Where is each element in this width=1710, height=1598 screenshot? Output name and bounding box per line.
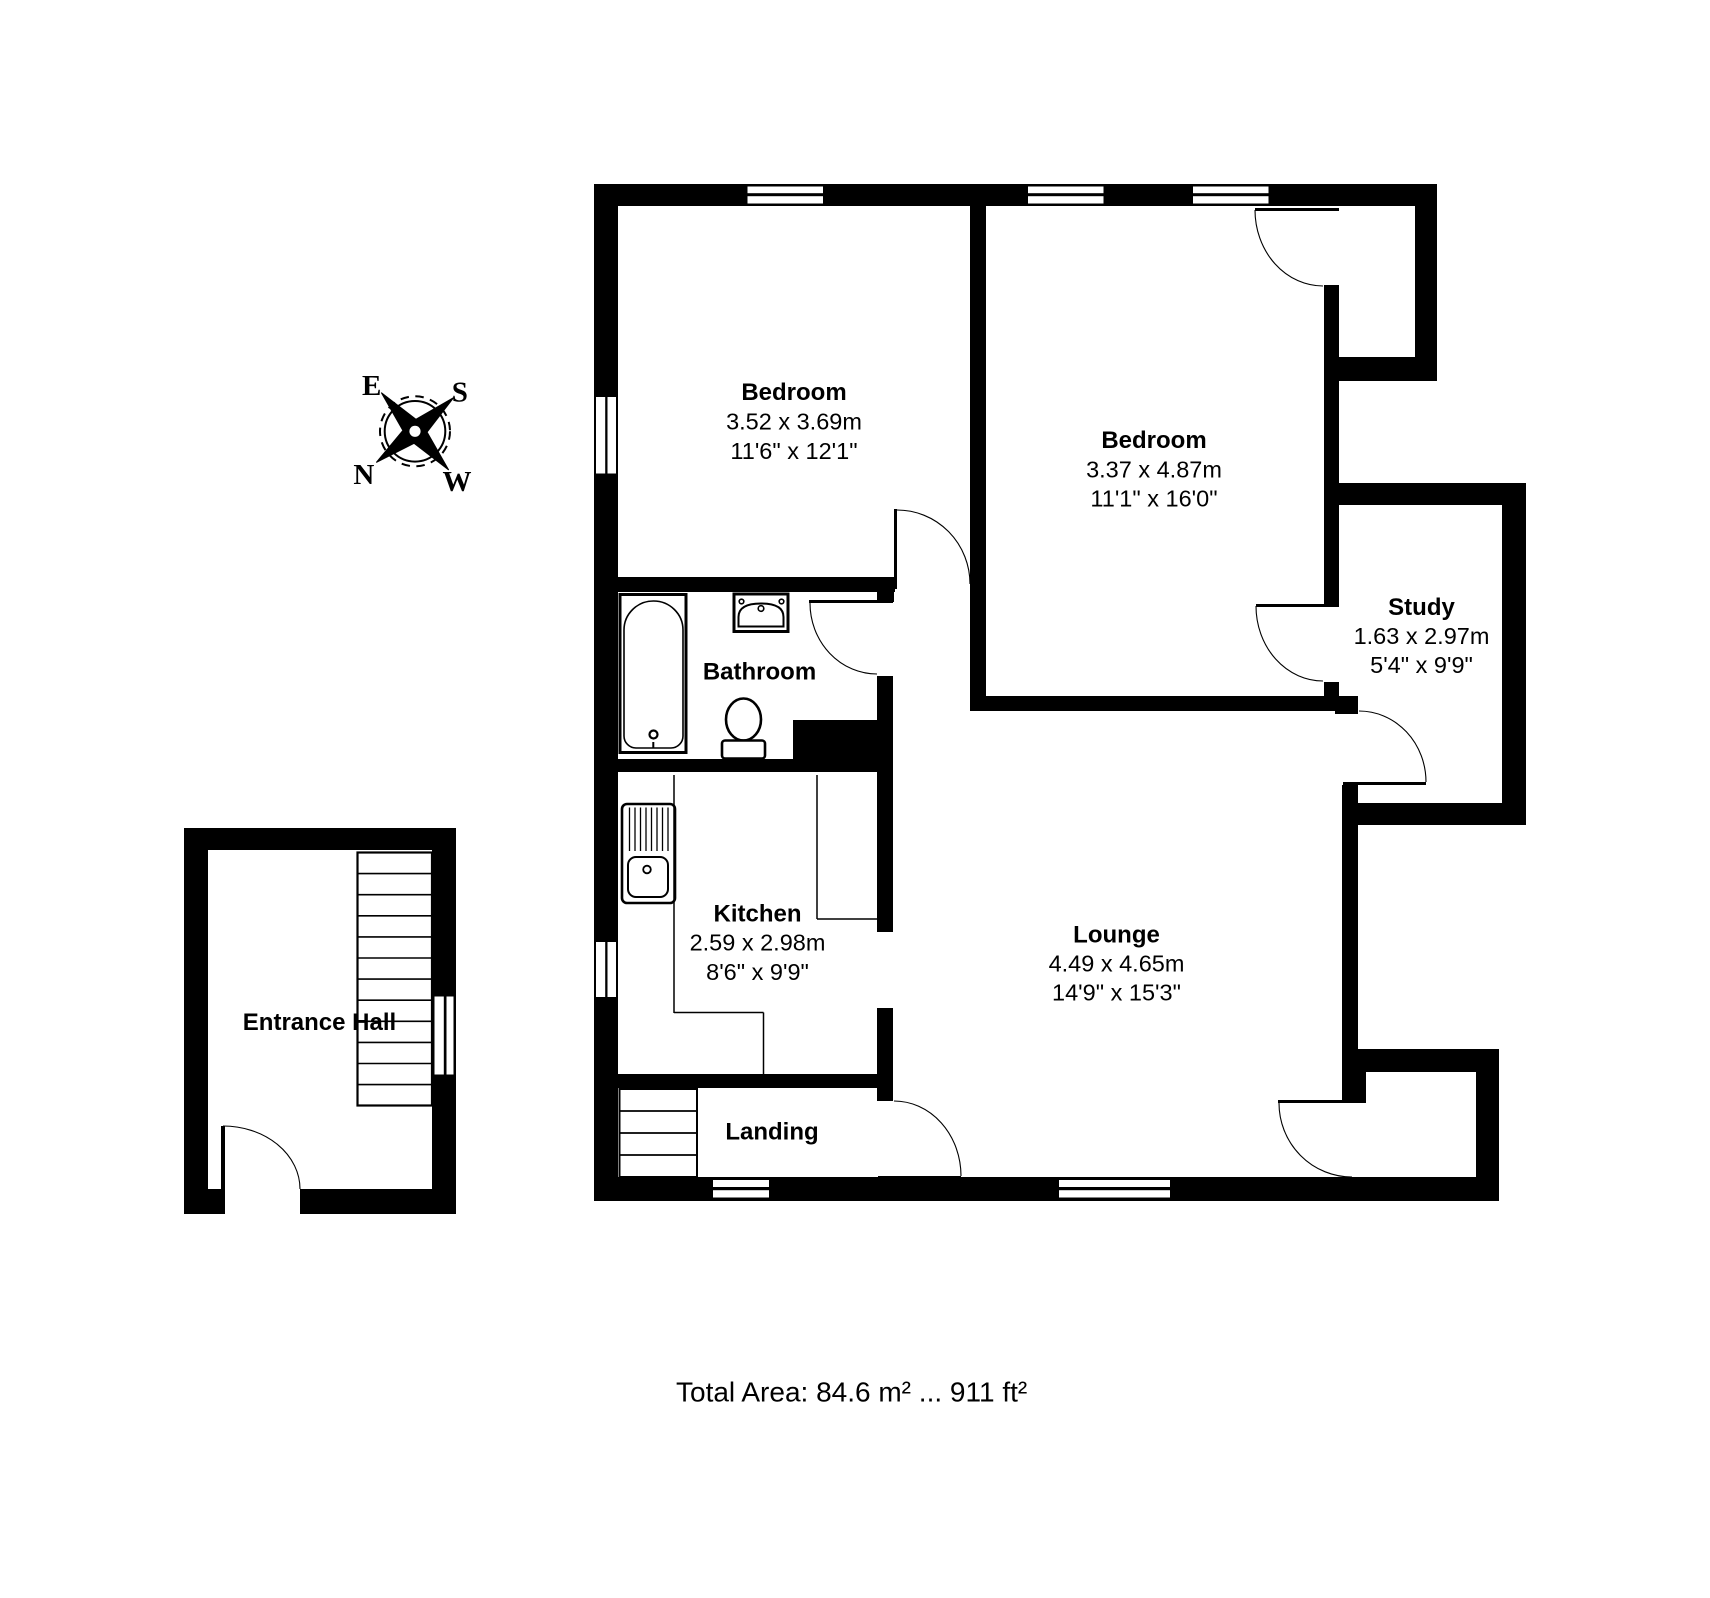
svg-text:S: S <box>452 377 468 409</box>
svg-text:Entrance Hall: Entrance Hall <box>243 1009 396 1036</box>
svg-text:14'9" x 15'3": 14'9" x 15'3" <box>1052 980 1181 1006</box>
svg-text:Total Area: 84.6 m² ... 911 ft: Total Area: 84.6 m² ... 911 ft² <box>676 1377 1027 1408</box>
svg-text:Kitchen: Kitchen <box>713 901 801 928</box>
svg-text:W: W <box>443 466 472 498</box>
svg-text:4.49 x 4.65m: 4.49 x 4.65m <box>1049 951 1185 977</box>
svg-text:11'1" x 16'0": 11'1" x 16'0" <box>1090 486 1217 512</box>
svg-text:5'4" x 9'9": 5'4" x 9'9" <box>1370 652 1473 678</box>
svg-text:Bathroom: Bathroom <box>703 659 816 686</box>
svg-text:N: N <box>353 459 374 491</box>
svg-text:3.52 x 3.69m: 3.52 x 3.69m <box>726 409 862 435</box>
svg-text:Bedroom: Bedroom <box>1101 427 1206 454</box>
svg-text:Landing: Landing <box>725 1119 818 1146</box>
svg-text:Study: Study <box>1388 594 1455 621</box>
svg-text:3.37 x 4.87m: 3.37 x 4.87m <box>1086 457 1222 483</box>
svg-text:Bedroom: Bedroom <box>741 379 846 406</box>
svg-text:Lounge: Lounge <box>1073 922 1160 949</box>
svg-text:8'6" x 9'9": 8'6" x 9'9" <box>706 959 809 985</box>
svg-text:2.59 x 2.98m: 2.59 x 2.98m <box>690 930 826 956</box>
svg-text:1.63 x 2.97m: 1.63 x 2.97m <box>1354 623 1490 649</box>
svg-text:11'6" x 12'1": 11'6" x 12'1" <box>730 438 857 464</box>
svg-text:E: E <box>362 370 381 402</box>
